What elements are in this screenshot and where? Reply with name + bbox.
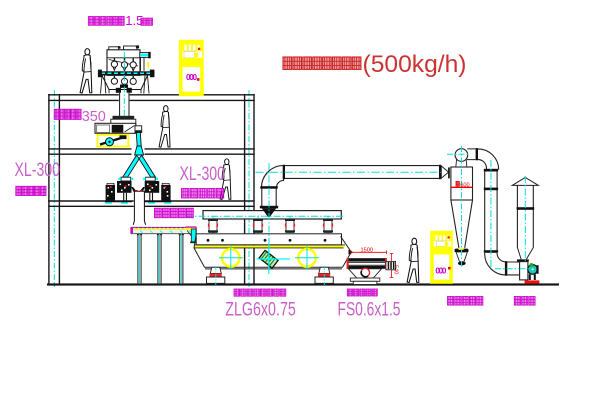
svg-text:ZLG6x0.75: ZLG6x0.75 [225,299,295,320]
svg-text:350: 350 [82,109,106,125]
svg-text:XL-300: XL-300 [15,160,61,181]
svg-text:000: 000 [435,267,446,276]
svg-text:600: 600 [460,182,469,188]
svg-text:XL-300: XL-300 [180,164,226,185]
svg-text:FS0.6x1.5: FS0.6x1.5 [338,299,401,320]
svg-text:1500: 1500 [361,248,373,254]
svg-text:(500kg/h): (500kg/h) [363,51,467,78]
svg-text:000: 000 [186,73,197,82]
